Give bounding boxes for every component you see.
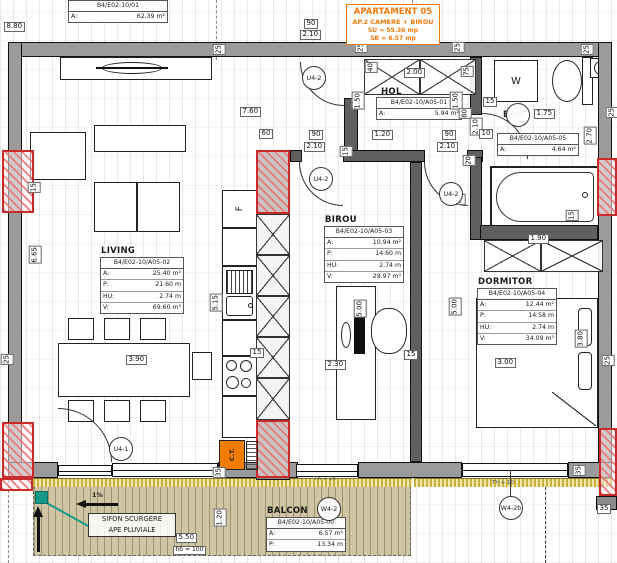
birou-hu-value: 2.74 m bbox=[379, 263, 401, 269]
dining-chair bbox=[68, 318, 94, 340]
sheet-area-value: 62.39 m² bbox=[137, 14, 165, 20]
dormitor-v-value: 34.09 m³ bbox=[526, 336, 554, 342]
dim-label: 15 bbox=[404, 350, 418, 360]
dining-chair bbox=[104, 318, 130, 340]
dining-chair bbox=[140, 400, 166, 422]
slope-label: 1% bbox=[92, 492, 103, 499]
room-title-hol: HOL bbox=[381, 87, 402, 97]
fridge: F bbox=[222, 190, 257, 228]
living-v-label: V: bbox=[103, 305, 109, 311]
dim-label: 1.90 bbox=[528, 234, 549, 244]
dim-label: 35 bbox=[573, 465, 586, 476]
dining-chair bbox=[192, 352, 212, 380]
dim-label: 3.00 bbox=[495, 358, 516, 368]
hol-a-value: 5.94 m² bbox=[435, 111, 459, 117]
birou-v-label: V: bbox=[327, 274, 333, 280]
dining-table bbox=[58, 343, 190, 397]
wall-birou-dormitor bbox=[410, 162, 422, 462]
column-red bbox=[2, 422, 34, 478]
dim-label: 5.50 bbox=[176, 533, 197, 543]
dining-chair bbox=[104, 400, 130, 422]
dim-label: hb = 100 bbox=[173, 546, 206, 555]
washing-machine-label: W bbox=[511, 76, 521, 87]
window-tag-label: W4-2 bbox=[321, 506, 338, 513]
dim-label: 25 bbox=[581, 44, 594, 55]
kitchen-counter bbox=[222, 396, 257, 438]
dim-label: 2.70 bbox=[584, 127, 597, 145]
birou-a-value: 10.94 m² bbox=[373, 240, 401, 246]
hol-wardrobe bbox=[420, 59, 476, 95]
door-tag: U4-2 bbox=[309, 167, 333, 191]
faucet bbox=[248, 303, 253, 308]
sifon-line2: APE PLUVIALE bbox=[89, 525, 175, 536]
dim-label: 90 bbox=[309, 130, 323, 140]
burner bbox=[240, 360, 252, 372]
room-title-balcon: BALCON bbox=[267, 506, 308, 516]
bathtub-inner bbox=[496, 172, 594, 222]
toilet-bowl bbox=[552, 60, 582, 102]
dim-label: 5.15 bbox=[210, 294, 223, 312]
balcon-a-label: A: bbox=[269, 531, 275, 537]
dim-label: 6.65 bbox=[29, 246, 42, 264]
dormitor-wardrobe bbox=[541, 240, 603, 272]
column-red bbox=[256, 150, 290, 214]
slope-arrow-head bbox=[76, 500, 86, 508]
balcon-info-box: B4/E02-10/A05-00 A:6.57 m² P:13.34 m bbox=[266, 517, 346, 552]
axis-line bbox=[545, 487, 546, 563]
dim-label: 40 bbox=[365, 62, 378, 73]
sofa bbox=[94, 125, 186, 152]
dim-label: 35 bbox=[597, 504, 611, 514]
dormitor-wardrobe bbox=[484, 240, 541, 272]
drain-icon bbox=[35, 491, 48, 504]
window-tag-label: W4-2b bbox=[501, 505, 522, 512]
wall-bottom bbox=[358, 462, 462, 478]
hol-code: B4/E02-10/A05-01 bbox=[377, 98, 461, 109]
baie-a-label: A: bbox=[500, 147, 506, 153]
door-tag: U4-2 bbox=[439, 182, 463, 206]
dim-label: 60 bbox=[259, 129, 273, 139]
dormitor-code: B4/E02-10/A05-04 bbox=[478, 289, 556, 300]
living-code: B4/E02-10/A05-02 bbox=[101, 258, 183, 269]
dormitor-a-value: 12.44 m² bbox=[526, 302, 554, 308]
wall-hatch-cell bbox=[256, 378, 290, 420]
living-p-label: P: bbox=[103, 282, 109, 288]
dim-label: 25 bbox=[602, 355, 615, 366]
birou-code: B4/E02-10/A05-03 bbox=[325, 227, 403, 238]
dim-label: 5.00 bbox=[354, 300, 367, 318]
birou-p-label: P: bbox=[327, 251, 333, 257]
wall-hatch-cell bbox=[256, 255, 290, 296]
door-tag: U4-2 bbox=[302, 66, 326, 90]
burner bbox=[226, 376, 239, 389]
blanket-fold bbox=[552, 392, 596, 426]
wall-hatch-cell bbox=[256, 214, 290, 255]
sheet-info-box: B4/E02-10/01 A:62.39 m² bbox=[68, 0, 168, 23]
baie-info-box: B4/E02-10/A05-05 A:4.64 m² bbox=[497, 133, 579, 156]
sifon-label-box: SIFON SCURGERE APE PLUVIALE bbox=[88, 513, 176, 537]
dim-label: 20 bbox=[463, 155, 476, 166]
sheet-area-label: A: bbox=[71, 14, 77, 20]
dormitor-hu-label: HU: bbox=[480, 325, 491, 331]
facade-insulation-strip bbox=[33, 478, 412, 487]
office-chair bbox=[371, 308, 407, 354]
apartment-label: APARTAMENT 05 AP.2 CAMERE + BIROU SU = 5… bbox=[346, 4, 440, 45]
dim-label: 7.60 bbox=[240, 107, 261, 117]
living-a-label: A: bbox=[103, 271, 109, 277]
boiler-label: C.T. bbox=[228, 448, 236, 461]
living-hu-value: 2.74 m bbox=[159, 294, 181, 300]
wall-top bbox=[8, 42, 612, 57]
dim-label: 35 bbox=[213, 467, 226, 478]
column-red bbox=[599, 428, 617, 496]
dormitor-info-box: B4/E02-10/A05-04 A:12.44 m² P:14.58 m HU… bbox=[477, 288, 557, 345]
living-p-value: 21.60 m bbox=[155, 282, 181, 288]
dim-label: 1.20 bbox=[372, 130, 393, 140]
door-tag-label: U4-2 bbox=[444, 191, 459, 198]
dim-label: 3.80 bbox=[575, 330, 588, 348]
dim-label: 3.90 bbox=[126, 355, 147, 365]
room-title-dormitor: DORMITOR bbox=[478, 277, 532, 287]
tv-line bbox=[96, 67, 168, 69]
bathtub-faucet bbox=[582, 192, 588, 198]
apartment-subtitle: AP.2 CAMERE + BIROU bbox=[348, 18, 438, 26]
dim-label: 75 bbox=[461, 66, 474, 77]
armchair bbox=[30, 132, 86, 180]
dim-label: 1.50 bbox=[352, 92, 365, 110]
door-tag: U4-1 bbox=[109, 437, 133, 461]
door-tag-baie bbox=[506, 103, 530, 127]
window-dormitor bbox=[462, 463, 568, 477]
dim-label: 2.00 bbox=[404, 68, 425, 78]
dim-label: 2.30 bbox=[325, 360, 346, 370]
dim-label: 15 bbox=[340, 146, 353, 157]
dim-label: 15 bbox=[250, 348, 264, 358]
kitchen-counter bbox=[222, 228, 257, 266]
birou-info-box: B4/E02-10/A05-03 A:10.94 m² P:14.60 m HU… bbox=[324, 226, 404, 283]
birou-hu-label: HU: bbox=[327, 263, 338, 269]
fridge-label: F bbox=[235, 206, 245, 211]
dim-label: 1.75 bbox=[534, 109, 555, 119]
hol-a-label: A: bbox=[379, 111, 385, 117]
dim-label: 1.50 bbox=[450, 92, 463, 110]
sill-note: Th + 10 bbox=[492, 481, 514, 487]
dim-label: 90 bbox=[304, 19, 318, 29]
apartment-sb: SB = 6.57 mp bbox=[348, 35, 438, 42]
boiler-ct: C.T. bbox=[219, 440, 245, 470]
dining-chair bbox=[140, 318, 166, 340]
dim-label: 25 bbox=[1, 354, 14, 365]
window-living-balcony bbox=[112, 463, 218, 477]
wall-left bbox=[8, 42, 22, 478]
dormitor-a-label: A: bbox=[480, 302, 486, 308]
dim-label: 5.00 bbox=[449, 298, 462, 316]
dim-label: 25 bbox=[213, 44, 226, 55]
dim-label: 25 bbox=[452, 42, 465, 53]
monitor bbox=[354, 316, 365, 354]
north-arrow bbox=[37, 514, 40, 552]
coffee-table bbox=[94, 182, 137, 232]
north-arrow-head bbox=[33, 506, 43, 517]
pillow bbox=[578, 352, 592, 390]
wall-hol-birou bbox=[290, 150, 302, 162]
dim-label: 1.20 bbox=[214, 509, 227, 527]
dim-label: 2.10 bbox=[437, 142, 458, 152]
dormitor-p-value: 14.58 m bbox=[528, 313, 554, 319]
living-info-box: B4/E02-10/A05-02 A:25.40 m² P:21.60 m HU… bbox=[100, 257, 184, 314]
window-tag: W4-2 bbox=[317, 497, 341, 521]
balcon-a-value: 6.57 m² bbox=[319, 531, 343, 537]
coffee-table bbox=[137, 182, 180, 232]
dim-label: 15 bbox=[483, 97, 497, 107]
radiator bbox=[246, 441, 258, 470]
axis-line bbox=[8, 480, 9, 563]
room-title-living: LIVING bbox=[101, 246, 135, 256]
birou-a-label: A: bbox=[327, 240, 333, 246]
baie-code: B4/E02-10/A05-05 bbox=[498, 134, 578, 145]
dim-label: 2.10 bbox=[304, 142, 325, 152]
wall-hatch-cell bbox=[256, 296, 290, 337]
door-tag-label: U4-2 bbox=[307, 75, 322, 82]
birou-v-value: 29.97 m³ bbox=[373, 274, 401, 280]
dim-label: 10 bbox=[479, 129, 493, 139]
apartment-su: SU = 59.36 mp bbox=[348, 27, 438, 34]
column-red bbox=[597, 158, 617, 216]
window-tag: W4-2b bbox=[499, 496, 523, 520]
washing-machine: W bbox=[494, 60, 538, 102]
living-a-value: 25.40 m² bbox=[153, 271, 181, 277]
dormitor-p-label: P: bbox=[480, 313, 486, 319]
dim-label: 25 bbox=[606, 107, 617, 118]
burner bbox=[241, 378, 251, 388]
burner bbox=[226, 360, 237, 371]
balcon-p-value: 13.34 m bbox=[317, 542, 343, 548]
sifon-line1: SIFON SCURGERE bbox=[89, 514, 175, 525]
sill-note: Th + 16 bbox=[314, 477, 336, 483]
desk-lamp bbox=[341, 322, 351, 348]
slope-arrow-line bbox=[85, 503, 118, 506]
dim-label: 90 bbox=[442, 130, 456, 140]
dim-label: 2.10 bbox=[300, 30, 321, 40]
balcon-p-label: P: bbox=[269, 542, 275, 548]
dim-label: 15 bbox=[28, 182, 41, 193]
room-title-birou: BIROU bbox=[325, 215, 357, 225]
door-tag-label: U4-1 bbox=[114, 446, 129, 453]
dormitor-hu-value: 2.74 m bbox=[532, 325, 554, 331]
sheet-code: B4/E02-10/01 bbox=[69, 1, 167, 12]
door-tag-label: U4-2 bbox=[314, 176, 329, 183]
balcony-door-sill bbox=[58, 465, 112, 476]
slope-arrow bbox=[76, 500, 118, 508]
birou-p-value: 14.60 m bbox=[375, 251, 401, 257]
apartment-title: APARTAMENT 05 bbox=[348, 7, 438, 17]
living-v-value: 69.60 m³ bbox=[153, 305, 181, 311]
floor-plan: F C.T. W B4/E02-10/01 A:62.39 m² APARTAM… bbox=[0, 0, 617, 563]
dim-label: 15 bbox=[566, 210, 579, 221]
column-red bbox=[256, 420, 290, 478]
dim-label: 8.80 bbox=[4, 22, 25, 32]
column-red bbox=[0, 478, 33, 491]
living-hu-label: HU: bbox=[103, 294, 114, 300]
dormitor-v-label: V: bbox=[480, 336, 486, 342]
wall-hol-birou bbox=[343, 150, 425, 162]
dish-rack bbox=[226, 270, 253, 294]
baie-a-value: 4.64 m² bbox=[552, 147, 576, 153]
